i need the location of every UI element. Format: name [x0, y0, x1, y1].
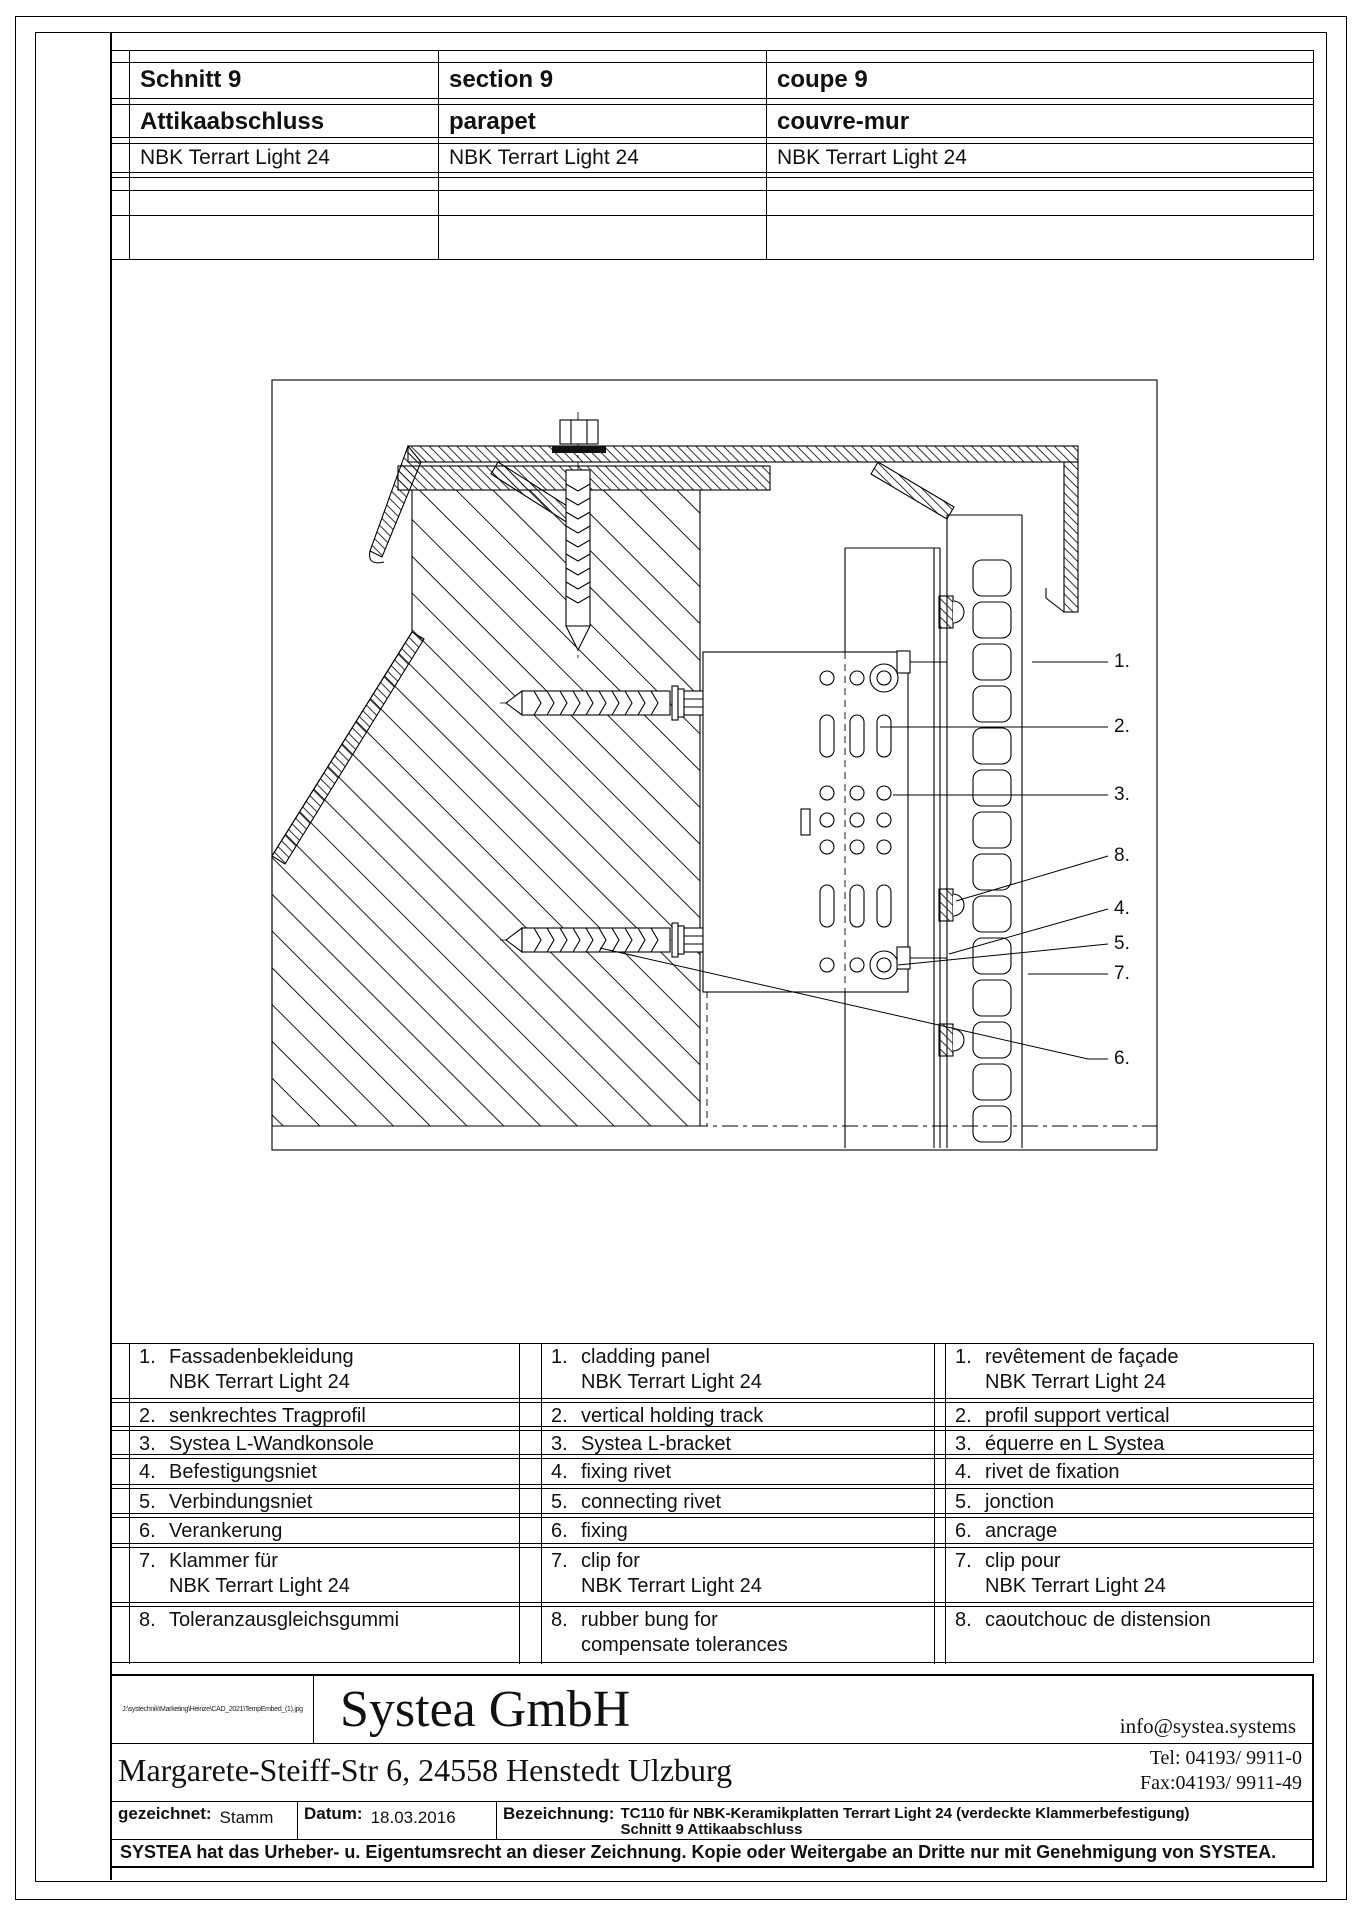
legend-row-4: 4.Befestigungsniet 4.fixing rivet 4.rive…	[111, 1459, 1313, 1485]
title-block: J:\systechnik\Marketing\Heinze\CAD_2021\…	[110, 1674, 1314, 1868]
callout-label-5: 5.	[1114, 933, 1158, 955]
drawn-by-value: Stamm	[220, 1808, 274, 1827]
callout-label-6: 6.	[1114, 1048, 1158, 1070]
drawing-sheet: Schnitt 9 section 9 coupe 9 Attikaabschl…	[0, 0, 1358, 1920]
legend-row-2: 2.senkrechtes Tragprofil 2.vertical hold…	[111, 1403, 1313, 1427]
drawn-by-cell: gezeichnet:Stamm	[112, 1802, 297, 1840]
legend-row-3: 3.Systea L-Wandkonsole 3.Systea L-bracke…	[111, 1431, 1313, 1455]
legend-row-7: 7.Klammer fürNBK Terrart Light 24 7.clip…	[111, 1548, 1313, 1603]
callout-label-2: 2.	[1114, 716, 1158, 738]
title-block-meta-row: gezeichnet:Stamm Datum:18.03.2016 Bezeic…	[112, 1802, 1312, 1840]
legend-row-6: 6.Verankerung 6.fixing 6.ancrage	[111, 1518, 1313, 1544]
file-path: J:\systechnik\Marketing\Heinze\CAD_2021\…	[116, 1706, 309, 1713]
designation-cell: Bezeichnung: TC110 für NBK-Keramikplatte…	[496, 1802, 1312, 1840]
anchor-horizontal-upper	[500, 686, 726, 720]
callout-label-7: 7.	[1114, 963, 1158, 985]
callout-label-3: 3.	[1114, 784, 1158, 806]
company-address: Margarete-Steiff-Str 6, 24558 Henstedt U…	[118, 1752, 732, 1789]
designation-value: TC110 für NBK-Keramikplatten Terrart Lig…	[620, 1804, 1189, 1838]
designation-label: Bezeichnung:	[503, 1804, 614, 1824]
company-telfax: Tel: 04193/ 9911-0 Fax:04193/ 9911-49	[1140, 1746, 1302, 1796]
legend-row-8: 8.Toleranzausgleichsgummi 8.rubber bung …	[111, 1607, 1313, 1664]
company-email: info@systea.systems	[1120, 1714, 1296, 1739]
company-tel: Tel: 04193/ 9911-0	[1140, 1746, 1302, 1771]
date-cell: Datum:18.03.2016	[297, 1802, 496, 1840]
legend-table: 1.FassadenbekleidungNBK Terrart Light 24…	[110, 1343, 1314, 1663]
l-bracket	[703, 652, 908, 992]
legend-row-1: 1.FassadenbekleidungNBK Terrart Light 24…	[111, 1344, 1313, 1399]
anchor-horizontal-lower	[500, 923, 726, 957]
company-name: Systea GmbH	[340, 1678, 630, 1742]
company-fax: Fax:04193/ 9911-49	[1140, 1771, 1302, 1796]
date-label: Datum:	[304, 1804, 363, 1823]
callout-label-4: 4.	[1114, 898, 1158, 920]
drawn-by-label: gezeichnet:	[118, 1804, 212, 1823]
callout-label-8: 8.	[1114, 845, 1158, 867]
file-path-cell: J:\systechnik\Marketing\Heinze\CAD_2021\…	[112, 1676, 314, 1743]
copyright-notice: SYSTEA hat das Urheber- u. Eigentumsrech…	[120, 1842, 1276, 1863]
date-value: 18.03.2016	[371, 1808, 456, 1827]
legend-row-5: 5.Verbindungsniet 5.connecting rivet 5.j…	[111, 1489, 1313, 1514]
callout-label-1: 1.	[1114, 651, 1158, 673]
